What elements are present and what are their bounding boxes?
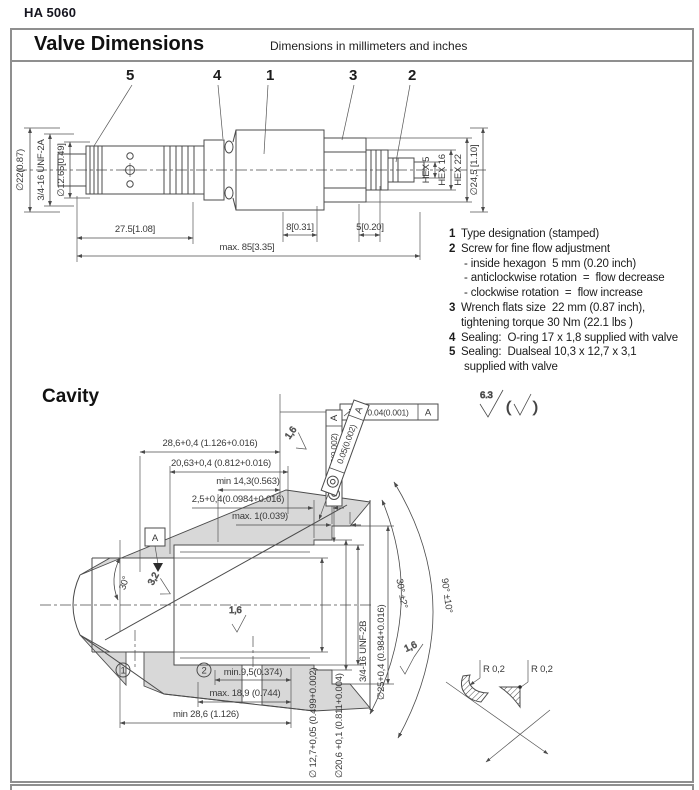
note-row: 2Screw for fine flow adjustment (449, 242, 691, 257)
angle-30: 30° (114, 558, 132, 600)
callout-4: 4 (213, 67, 222, 84)
datum-triangle-icon (153, 563, 163, 572)
dim-dia25: ∅25+0,4 (0.984+0.016) (376, 605, 387, 700)
document-code: HA 5060 (24, 5, 76, 20)
note-row: 4Sealing: O-ring 17 x 1,8 supplied with … (449, 331, 691, 346)
surface-finish-symbol: 6.3 ( ) (480, 390, 538, 417)
dim-hex22: HEX 22 (453, 154, 464, 186)
roughness-16b: 1,6 (229, 605, 242, 616)
roughness-icon (232, 615, 246, 632)
roughness-icon (400, 657, 414, 674)
valve-notes: 1Type designation (stamped) 2Screw for f… (449, 227, 691, 375)
roughness-icon (514, 394, 531, 415)
datasheet-page: HA 5060 Valve Dimensions Dimensions in m… (0, 0, 699, 790)
datum-a-label: A (152, 533, 159, 544)
page-title: Valve Dimensions (34, 33, 204, 56)
dim-dia206: ∅20,6 +0,1 (0.811+0.004) (334, 673, 345, 778)
cavity-drawing: ∅ 12,7+0,05 (0.499+0.002) ∅20,6 +0,1 (0.… (14, 382, 686, 782)
angle-90t-label: 90° ±10° (439, 578, 455, 615)
roughness-16c: 1,6 (403, 639, 419, 654)
port-2-label: 2 (201, 666, 206, 677)
note-row: - anticlockwise rotation = flow decrease (449, 271, 691, 286)
radius-2-label: R 0,2 (531, 664, 553, 675)
units-note: Dimensions in millimeters and inches (270, 39, 467, 53)
surface-finish-value: 6.3 (480, 390, 493, 401)
dim-95: min.9,5(0.374) (224, 667, 282, 678)
note-row: tightening torque 30 Nm (22.1 lbs ) (449, 316, 691, 331)
callout-5: 5 (126, 67, 134, 84)
dim-25: 2,5+0,4(0.0984+0.016) (192, 494, 285, 505)
angle-30t-label: 30° ±2° (393, 578, 409, 610)
callout-3: 3 (349, 67, 357, 84)
dim-189: max. 18,9 (0.744) (209, 688, 280, 699)
runout-datum: A (425, 408, 432, 419)
dim-286b: min 28,6 (1.126) (173, 709, 239, 720)
note-row: - inside hexagon 5 mm (0.20 inch) (449, 257, 691, 272)
note-row: 3Wrench flats size 22 mm (0.87 inch), (449, 301, 691, 316)
roughness-32: 3,2 (146, 571, 162, 587)
note-row: - clockwise rotation = flow increase (449, 286, 691, 301)
dim-hex16: HEX 16 (437, 154, 448, 186)
dim-dia1265: ∅12.65[0.49] (56, 143, 67, 196)
section-title-bar: Valve Dimensions Dimensions in millimete… (12, 30, 692, 62)
callout-1: 1 (266, 67, 274, 84)
radius-detail-2 (500, 687, 520, 707)
note-row: 1Type designation (stamped) (449, 227, 691, 242)
radius-1-label: R 0,2 (483, 664, 505, 675)
port-1-label: 1 (120, 666, 125, 677)
dim-hex5: HEX 5 (421, 157, 432, 183)
next-section-frame (10, 784, 694, 790)
valve-bottom-dims: 27.5[1.08] 8[0.31] 5[0.20] max. 85[3.35] (77, 186, 420, 262)
dim-thread-unf2a: 3/4-16 UNF-2A (36, 139, 47, 201)
paren-open: ( (506, 399, 511, 416)
dim-dia127: ∅ 12,7+0,05 (0.499+0.002) (308, 667, 319, 778)
dim-max1: max. 1(0.039) (232, 511, 288, 522)
callout-2: 2 (408, 67, 416, 84)
dim-275: 27.5[1.08] (115, 224, 155, 235)
radius-details: R 0,2 R 0,2 (462, 660, 553, 707)
dim-143: min 14,3(0.563) (216, 476, 280, 487)
angle-30-label: 30° (117, 575, 132, 592)
cavity-diameter-dims: ∅ 12,7+0,05 (0.499+0.002) ∅20,6 +0,1 (0.… (174, 526, 394, 778)
roughness-16a: 1,6 (283, 425, 299, 442)
valve-callouts: 5 4 1 3 2 (94, 67, 416, 162)
dim-2063: 20,63+0,4 (0.812+0.016) (171, 458, 271, 469)
radius-detail-1 (462, 675, 488, 702)
dim-max85: max. 85[3.35] (220, 242, 275, 253)
runout-value: 0.04(0.001) (367, 408, 409, 418)
valve-drawing: 5 4 1 3 2 ∅22(0.87) 3/4-16 UNF-2A ∅12.65… (14, 62, 500, 272)
cone-angle-arcs: 30° ±2° 90° ±10° (370, 482, 550, 762)
leader-dot-icon (518, 685, 522, 689)
note-row: supplied with valve (449, 360, 691, 375)
dim-8: 8[0.31] (286, 222, 314, 233)
dim-286: 28,6+0,4 (1.126+0.016) (163, 438, 258, 449)
dim-dia22: ∅22(0.87) (15, 149, 26, 191)
conc1-datum: A (329, 414, 340, 421)
note-row: 5Sealing: Dualseal 10,3 x 12,7 x 3,1 (449, 345, 691, 360)
dim-dia245: ∅24,5 [1.10] (469, 145, 480, 196)
dim-thread-unf2b: 3/4-16 UNF-2B (358, 621, 369, 682)
dim-5: 5[0.20] (356, 222, 384, 233)
paren-close: ) (533, 399, 538, 416)
